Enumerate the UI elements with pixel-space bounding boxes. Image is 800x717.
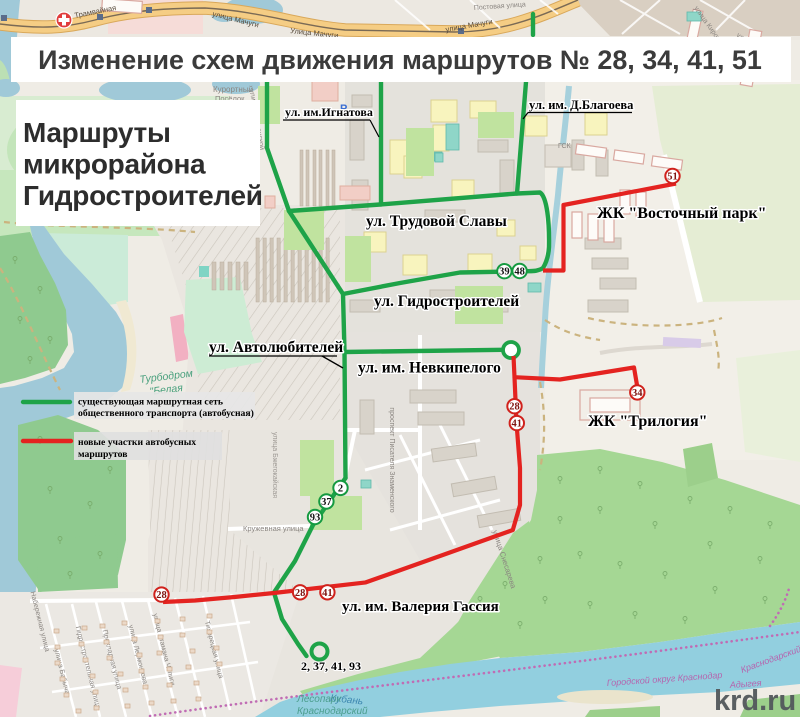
svg-text:Лесопарк: Лесопарк [296,694,342,705]
svg-text:2, 37, 41, 93: 2, 37, 41, 93 [301,659,361,673]
svg-text:общественного транспорта (авто: общественного транспорта (автобусная) [78,408,254,419]
svg-text:51: 51 [667,172,678,183]
svg-text:Гидростроителей: Гидростроителей [23,180,263,211]
svg-text:Курортный: Курортный [213,85,253,94]
svg-text:улица Бжегокайская: улица Бжегокайская [271,432,279,498]
svg-text:34: 34 [632,388,643,399]
svg-text:ул. им. Невкипелого: ул. им. Невкипелого [358,360,501,377]
svg-text:маршрутов: маршрутов [78,449,128,460]
svg-text:ЖК "Трилогия": ЖК "Трилогия" [588,413,707,430]
svg-text:28: 28 [295,588,306,599]
svg-text:ГСК: ГСК [558,143,572,150]
svg-text:новые участки автобусных: новые участки автобусных [78,437,196,448]
svg-text:ул. Гидростроителей: ул. Гидростроителей [374,293,519,310]
svg-text:ул. им. Д.Благоева: ул. им. Д.Благоева [529,98,634,112]
svg-text:ул. им.Игнатова: ул. им.Игнатова [285,105,373,119]
svg-text:Маршруты: Маршруты [23,117,171,148]
svg-text:Изменение схем движения маршру: Изменение схем движения маршрутов № 28, … [38,45,762,75]
svg-text:28: 28 [509,402,520,413]
svg-text:41: 41 [512,419,523,430]
svg-text:ЖК "Восточный парк": ЖК "Восточный парк" [597,205,766,222]
svg-text:ул. Трудовой Славы: ул. Трудовой Славы [366,213,507,230]
svg-text:37: 37 [321,497,332,508]
svg-text:41: 41 [322,588,333,599]
svg-text:микрорайона: микрорайона [23,149,206,180]
svg-text:48: 48 [514,267,525,278]
svg-text:Краснодарский: Краснодарский [297,706,368,717]
svg-text:ул. им. Валерия Гассия: ул. им. Валерия Гассия [342,599,499,615]
svg-text:ул. Автолюбителей: ул. Автолюбителей [209,339,343,356]
svg-text:2: 2 [338,483,343,494]
svg-text:Кружевная улица: Кружевная улица [243,524,304,533]
svg-text:39: 39 [499,267,510,278]
svg-text:93: 93 [310,513,321,524]
svg-text:28: 28 [156,590,167,601]
svg-text:проспект Писателя Знаменского: проспект Писателя Знаменского [388,407,395,512]
svg-text:существующая маршрутная сеть: существующая маршрутная сеть [78,397,223,408]
svg-text:krd.ru: krd.ru [714,685,796,717]
